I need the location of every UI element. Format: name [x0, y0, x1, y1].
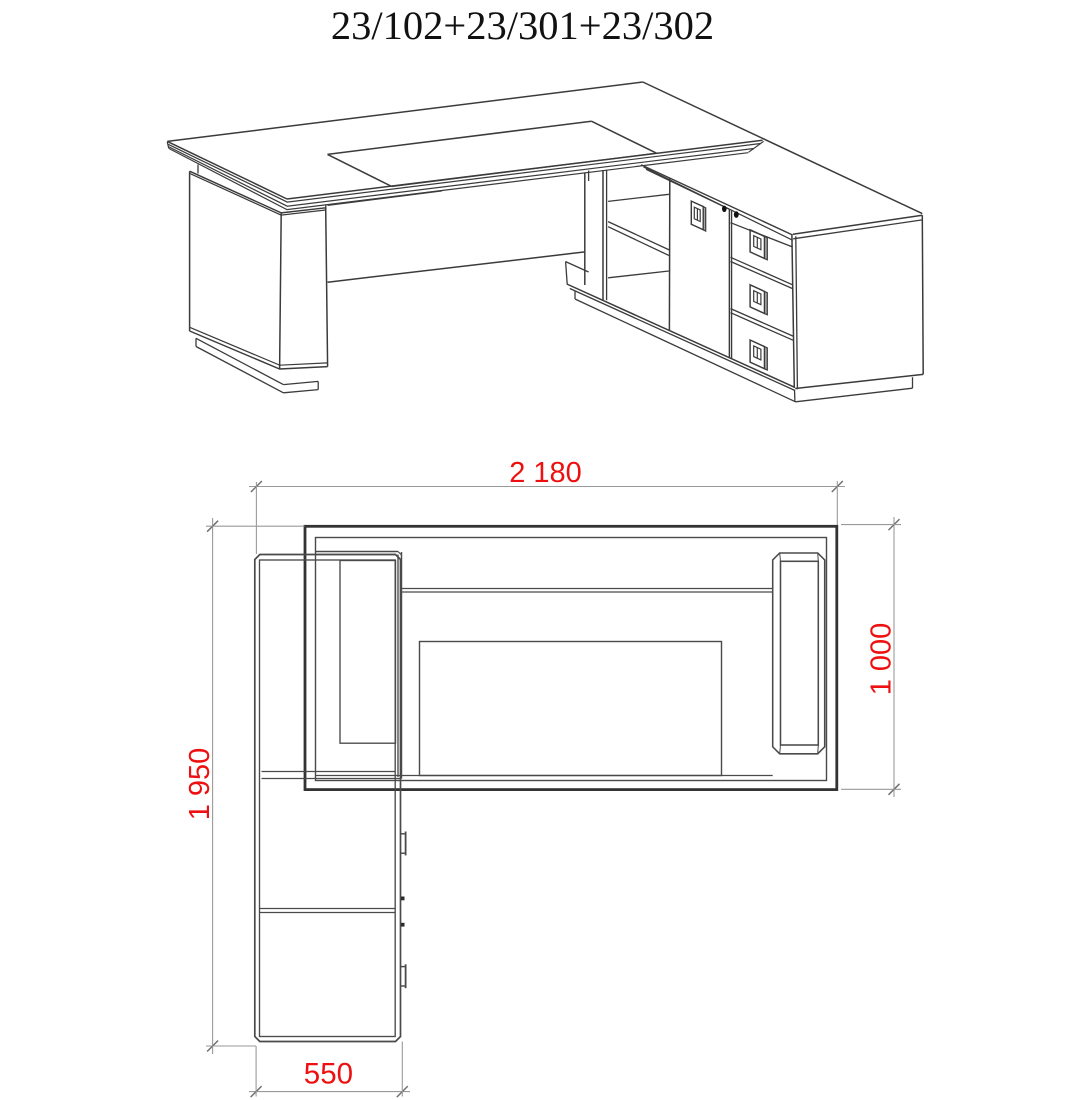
svg-text:23/102+23/301+23/302: 23/102+23/301+23/302	[331, 3, 714, 48]
svg-text:550: 550	[304, 1058, 353, 1091]
svg-text:1 950: 1 950	[184, 748, 216, 821]
svg-text:1 000: 1 000	[866, 623, 898, 696]
svg-text:2 180: 2 180	[509, 457, 582, 489]
